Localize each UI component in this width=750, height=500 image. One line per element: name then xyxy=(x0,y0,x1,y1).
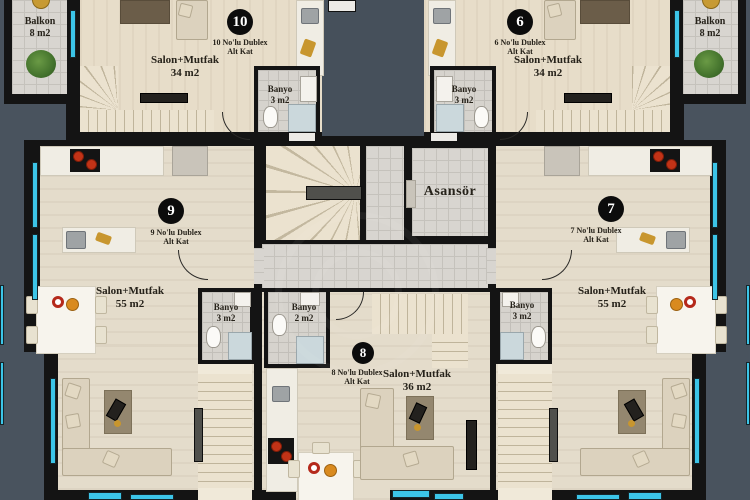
stair-edge xyxy=(498,488,552,500)
plant-icon xyxy=(694,50,724,78)
unit-8-bath-label: Banyo 2 m2 xyxy=(292,302,317,323)
elevator-door xyxy=(406,180,416,208)
room-area: 34 m2 xyxy=(514,67,582,80)
window xyxy=(576,494,620,500)
room-area: 36 m2 xyxy=(383,381,451,394)
unit-10-room-label: Salon+Mutfak 34 m2 xyxy=(151,54,219,80)
room-area: 55 m2 xyxy=(578,298,646,311)
plate-icon xyxy=(670,298,683,311)
balcony-left-label: Balkon 8 m2 xyxy=(25,16,56,40)
kitchen-sink xyxy=(666,231,686,249)
unit-10-bath-label: Banyo 3 m2 xyxy=(268,84,293,105)
unit-10-name-line1: 10 No'lu Dublex xyxy=(212,38,267,47)
elevator-label: Asansör xyxy=(424,184,477,201)
unit-9-kitchen-counter xyxy=(40,146,164,176)
watermark-logo xyxy=(312,249,402,339)
unit-6-room-label: Salon+Mutfak 34 m2 xyxy=(514,54,582,80)
rug xyxy=(120,0,170,24)
window xyxy=(746,362,750,425)
unit-10-name: 10 No'lu Dublex Alt Kat xyxy=(212,38,267,57)
bath-area: 3 m2 xyxy=(214,313,239,324)
unit-9-name-line2: Alt Kat xyxy=(150,237,201,246)
unit-6-bath-label: Banyo 3 m2 xyxy=(452,84,477,105)
window xyxy=(32,162,38,228)
window xyxy=(70,10,76,58)
unit-7-room-label: Salon+Mutfak 55 m2 xyxy=(578,285,646,311)
rug xyxy=(580,0,630,24)
unit-10-number-badge: 10 xyxy=(227,9,253,35)
corridor-window-sill xyxy=(288,132,316,142)
toilet xyxy=(474,106,489,128)
unit-7-name-line1: 7 No'lu Dublex xyxy=(570,226,621,235)
tv-unit xyxy=(564,93,612,103)
stair-railing xyxy=(306,186,362,200)
floor-plan: 10 10 No'lu Dublex Alt Kat Salon+Mutfak … xyxy=(0,0,750,500)
bath-name: Banyo xyxy=(214,302,239,313)
balcony-right-floor xyxy=(683,0,738,94)
room-type: Salon+Mutfak xyxy=(578,285,646,298)
window xyxy=(434,493,464,500)
unit-7-stairs xyxy=(498,374,552,490)
stair-railing xyxy=(194,408,203,462)
window xyxy=(712,162,718,228)
unit-10-name-line2: Alt Kat xyxy=(212,47,267,56)
room-area: 34 m2 xyxy=(151,67,219,80)
bath-area: 3 m2 xyxy=(268,95,293,106)
window xyxy=(50,378,56,464)
sofa-cushion xyxy=(671,413,687,429)
unit-6-stairs-winder xyxy=(632,66,670,110)
bath-name: Banyo xyxy=(510,300,535,311)
kitchen-cabinet xyxy=(172,146,208,176)
bath-name: Banyo xyxy=(292,302,317,313)
dining-table xyxy=(298,452,354,500)
balcony-left-floor xyxy=(12,0,67,94)
chair xyxy=(26,326,38,344)
stove xyxy=(70,149,100,172)
bath-name: Banyo xyxy=(268,84,293,95)
unit-9-stairs xyxy=(198,374,252,490)
unit-9-name: 9 No'lu Dublex Alt Kat xyxy=(150,228,201,247)
stair-railing xyxy=(549,408,558,462)
shower xyxy=(228,332,252,360)
toilet xyxy=(263,106,278,128)
window xyxy=(88,492,122,500)
toilet xyxy=(531,326,546,348)
plate-icon xyxy=(324,464,337,477)
plate-icon xyxy=(308,462,320,474)
room-type: Salon+Mutfak xyxy=(96,285,164,298)
bathroom-sink xyxy=(436,76,453,102)
kitchen-sink xyxy=(301,8,319,24)
tv-unit xyxy=(466,420,477,470)
plate-icon xyxy=(66,298,79,311)
unit-6-stairs xyxy=(536,110,670,132)
unit-8-name: 8 No'lu Dublex Alt Kat xyxy=(331,368,382,387)
sofa-cushion xyxy=(365,393,382,410)
room-type: Salon+Mutfak xyxy=(151,54,219,67)
shaft-window-sill xyxy=(328,0,356,12)
room-type: Salon+Mutfak xyxy=(514,54,582,67)
window xyxy=(628,492,662,500)
kitchen-cabinet xyxy=(544,146,580,176)
unit-9-name-line1: 9 No'lu Dublex xyxy=(150,228,201,237)
unit-7-name: 7 No'lu Dublex Alt Kat xyxy=(570,226,621,245)
kitchen-sink xyxy=(66,231,86,249)
unit-8-name-line1: 8 No'lu Dublex xyxy=(331,368,382,377)
kitchen-sink xyxy=(272,386,290,402)
bath-area: 2 m2 xyxy=(292,313,317,324)
unit-10-stairs-winder xyxy=(80,66,118,110)
shower xyxy=(500,332,524,360)
unit-7-name-line2: Alt Kat xyxy=(570,235,621,244)
plate-icon xyxy=(52,296,64,308)
window xyxy=(32,234,38,300)
window xyxy=(712,234,718,300)
bath-name: Banyo xyxy=(452,84,477,95)
unit-8-room-label: Salon+Mutfak 36 m2 xyxy=(383,368,451,394)
shower xyxy=(436,104,464,132)
unit-9-number-badge: 9 xyxy=(158,198,184,224)
unit-8-number-badge: 8 xyxy=(352,342,374,364)
chair xyxy=(646,326,658,344)
unit-7-number-badge: 7 xyxy=(598,196,624,222)
tv-unit xyxy=(140,93,188,103)
unit-6-name-line1: 6 No'lu Dublex xyxy=(494,38,545,47)
chair xyxy=(288,460,300,478)
bathroom-sink xyxy=(300,76,317,102)
window xyxy=(130,494,174,500)
shower xyxy=(288,104,316,132)
corridor-window-sill xyxy=(430,132,458,142)
light-shaft xyxy=(322,0,424,136)
window xyxy=(392,490,430,498)
dining-table xyxy=(36,286,96,354)
stove xyxy=(650,149,680,172)
chair xyxy=(715,326,727,344)
unit-8-name-line2: Alt Kat xyxy=(331,377,382,386)
bath-area: 3 m2 xyxy=(510,311,535,322)
balcony-name: Balkon xyxy=(25,16,56,28)
window xyxy=(694,378,700,464)
unit-8-stairs-lower xyxy=(432,334,468,368)
toilet xyxy=(206,326,221,348)
room-area: 55 m2 xyxy=(96,298,164,311)
window xyxy=(746,285,750,345)
balcony-area: 8 m2 xyxy=(25,28,56,40)
balcony-area: 8 m2 xyxy=(695,28,726,40)
chair xyxy=(95,326,107,344)
sofa-cushion xyxy=(65,413,81,429)
unit-9-bath-label: Banyo 3 m2 xyxy=(214,302,239,323)
window xyxy=(0,285,4,345)
unit-6-number-badge: 6 xyxy=(507,9,533,35)
balcony-right-label: Balkon 8 m2 xyxy=(695,16,726,40)
chair xyxy=(312,442,330,454)
room-type: Salon+Mutfak xyxy=(383,368,451,381)
bath-area: 3 m2 xyxy=(452,95,477,106)
unit-10-stairs xyxy=(80,110,214,132)
window xyxy=(0,362,4,425)
chair xyxy=(646,296,658,314)
stair-edge xyxy=(198,488,252,500)
window xyxy=(674,10,680,58)
unit-9-room-label: Salon+Mutfak 55 m2 xyxy=(96,285,164,311)
plate-icon xyxy=(684,296,696,308)
unit-7-bath-label: Banyo 3 m2 xyxy=(510,300,535,321)
plant-icon xyxy=(26,50,56,78)
kitchen-sink xyxy=(433,8,451,24)
balcony-name: Balkon xyxy=(695,16,726,28)
